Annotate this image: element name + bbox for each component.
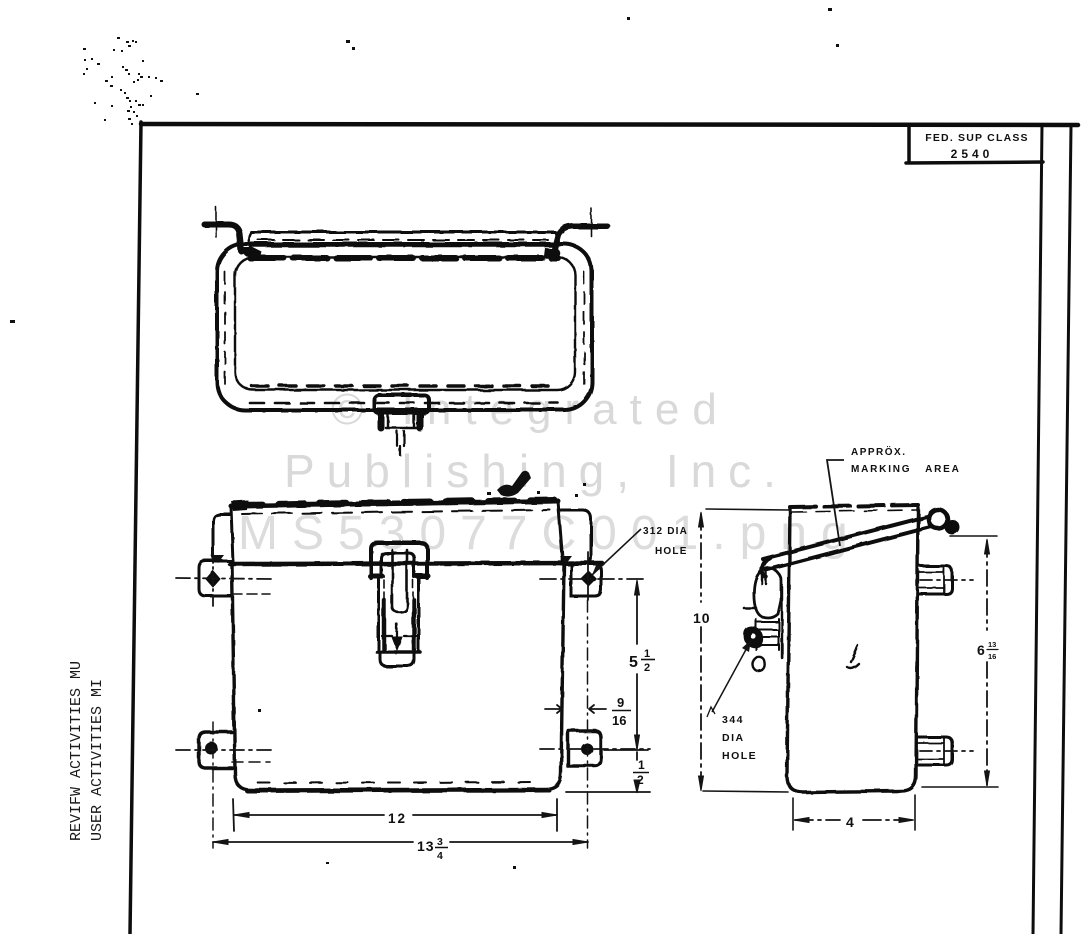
svg-text:1: 1 [638,758,645,772]
svg-text:HOLE: HOLE [722,750,757,762]
svg-text:MS53077C001.png: MS53077C001.png [238,507,862,560]
svg-text:16: 16 [612,713,626,728]
svg-text:2: 2 [644,662,650,674]
svg-text:MARKING AREA: MARKING AREA [851,464,961,475]
svg-text:FED. SUP CLASS: FED. SUP CLASS [925,132,1029,144]
svg-text:2: 2 [637,773,644,787]
svg-text:312 DIA: 312 DIA [643,526,688,537]
svg-text:4: 4 [437,850,443,862]
svg-text:12: 12 [388,811,407,826]
svg-text:HOLE: HOLE [655,546,688,557]
svg-text:2540: 2540 [951,147,994,161]
svg-text:13: 13 [417,838,435,854]
svg-text:Publishing, Inc.: Publishing, Inc. [284,445,788,497]
svg-text:10: 10 [693,610,711,626]
svg-text:DIA: DIA [722,732,745,744]
svg-text:16: 16 [988,652,996,661]
svg-text:9: 9 [617,695,624,710]
svg-text:13: 13 [988,640,996,649]
svg-text:344: 344 [722,714,744,726]
svg-text:6: 6 [977,642,985,658]
svg-text:USER ACTIVITIES MI: USER ACTIVITIES MI [89,679,106,841]
svg-text:4: 4 [846,814,854,830]
svg-text:3: 3 [437,836,443,848]
svg-text:1: 1 [644,648,650,660]
svg-text:APPRÖX.: APPRÖX. [851,445,907,458]
svg-text:5: 5 [629,654,638,671]
svg-text:REVIFW ACTIVITIES MU: REVIFW ACTIVITIES MU [68,661,85,841]
